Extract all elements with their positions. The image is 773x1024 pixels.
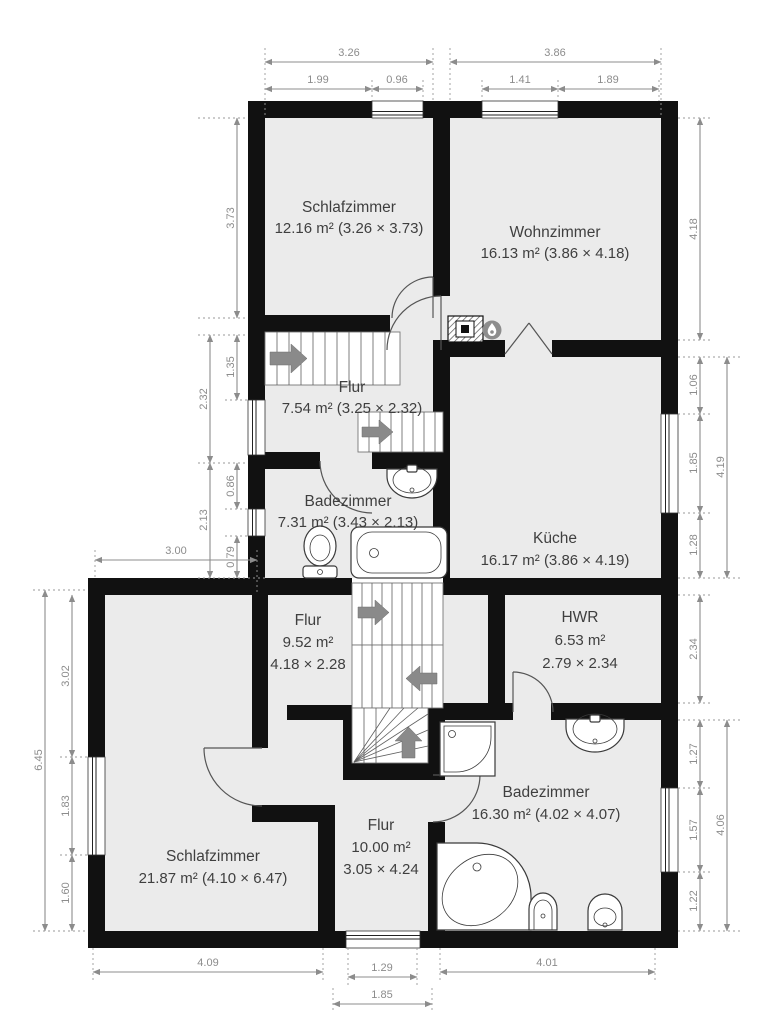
dim-value: 6.45 bbox=[33, 749, 45, 770]
window-flur3-bottom bbox=[346, 931, 420, 948]
dim-value: 3.86 bbox=[544, 47, 565, 59]
dim-value: 1.27 bbox=[688, 743, 700, 764]
room-area: 9.52 m² bbox=[283, 634, 334, 651]
room-area: 16.13 m² (3.86 × 4.18) bbox=[481, 245, 630, 262]
room-label: Flur bbox=[368, 817, 395, 834]
room-label: Küche bbox=[533, 530, 577, 547]
dim-value: 0.96 bbox=[386, 74, 407, 86]
window-wohnzimmer-top bbox=[482, 101, 558, 118]
window-badezimmer2-right bbox=[661, 788, 678, 872]
room-area: 10.00 m² bbox=[351, 839, 410, 856]
dim-value: 1.29 bbox=[371, 962, 392, 974]
window-kueche-right bbox=[661, 414, 678, 513]
room-label: Wohnzimmer bbox=[509, 224, 600, 241]
window-schlafzimmer2-left bbox=[88, 757, 105, 855]
room-area: 12.16 m² (3.26 × 3.73) bbox=[275, 220, 424, 237]
floorplan-drawing: Schlafzimmer 12.16 m² (3.26 × 3.73) Wohn… bbox=[0, 0, 773, 1024]
room-label: Schlafzimmer bbox=[166, 848, 260, 865]
dim-value: 1.35 bbox=[225, 356, 237, 377]
room-dims: 4.18 × 2.28 bbox=[270, 656, 345, 673]
dim-value: 4.19 bbox=[715, 456, 727, 477]
room-area: 16.30 m² (4.02 × 4.07) bbox=[472, 806, 621, 823]
dim-value: 1.99 bbox=[307, 74, 328, 86]
dim-value: 4.01 bbox=[536, 957, 557, 969]
dim-value: 3.00 bbox=[165, 545, 186, 557]
room-label: Schlafzimmer bbox=[302, 199, 396, 216]
dim-value: 1.28 bbox=[688, 534, 700, 555]
dim-value: 2.34 bbox=[688, 638, 700, 659]
room-schlafzimmer-1[interactable] bbox=[265, 118, 433, 315]
dim-value: 1.60 bbox=[60, 882, 72, 903]
dim-value: 1.85 bbox=[371, 989, 392, 1001]
dim-value: 1.83 bbox=[60, 795, 72, 816]
room-dims: 3.05 × 4.24 bbox=[343, 861, 418, 878]
dim-value: 2.13 bbox=[198, 509, 210, 530]
room-label: Badezimmer bbox=[305, 493, 392, 510]
dim-value: 4.18 bbox=[688, 218, 700, 239]
dim-value: 3.73 bbox=[225, 207, 237, 228]
dim-value: 2.32 bbox=[198, 388, 210, 409]
dim-value: 3.26 bbox=[338, 47, 359, 59]
room-area: 16.17 m² (3.86 × 4.19) bbox=[481, 552, 630, 569]
dim-value: 4.09 bbox=[197, 957, 218, 969]
dim-value: 3.02 bbox=[60, 665, 72, 686]
dim-value: 1.85 bbox=[688, 452, 700, 473]
dim-value: 1.57 bbox=[688, 819, 700, 840]
window-schlafzimmer-top bbox=[372, 101, 423, 118]
dim-value: 1.41 bbox=[509, 74, 530, 86]
room-label: Badezimmer bbox=[503, 784, 590, 801]
room-label: HWR bbox=[561, 609, 598, 626]
dim-value: 1.06 bbox=[688, 374, 700, 395]
room-label: Flur bbox=[295, 612, 322, 629]
room-label: Flur bbox=[339, 379, 366, 396]
dim-value: 1.22 bbox=[688, 890, 700, 911]
room-area: 7.31 m² (3.43 × 2.13) bbox=[278, 514, 419, 531]
floorplan-page: Schlafzimmer 12.16 m² (3.26 × 3.73) Wohn… bbox=[0, 0, 773, 1024]
dim-value: 1.89 bbox=[597, 74, 618, 86]
room-badezimmer-2[interactable] bbox=[445, 720, 661, 931]
dim-value: 4.06 bbox=[715, 814, 727, 835]
room-area: 21.87 m² (4.10 × 6.47) bbox=[139, 870, 288, 887]
dim-value: 0.79 bbox=[225, 546, 237, 567]
room-area: 7.54 m² (3.25 × 2.32) bbox=[282, 400, 423, 417]
room-dims: 2.79 × 2.34 bbox=[542, 655, 617, 672]
dim-value: 0.86 bbox=[225, 475, 237, 496]
window-badezimmer-left bbox=[248, 509, 265, 536]
window-flur-left bbox=[248, 400, 265, 455]
room-area: 6.53 m² bbox=[555, 632, 606, 649]
